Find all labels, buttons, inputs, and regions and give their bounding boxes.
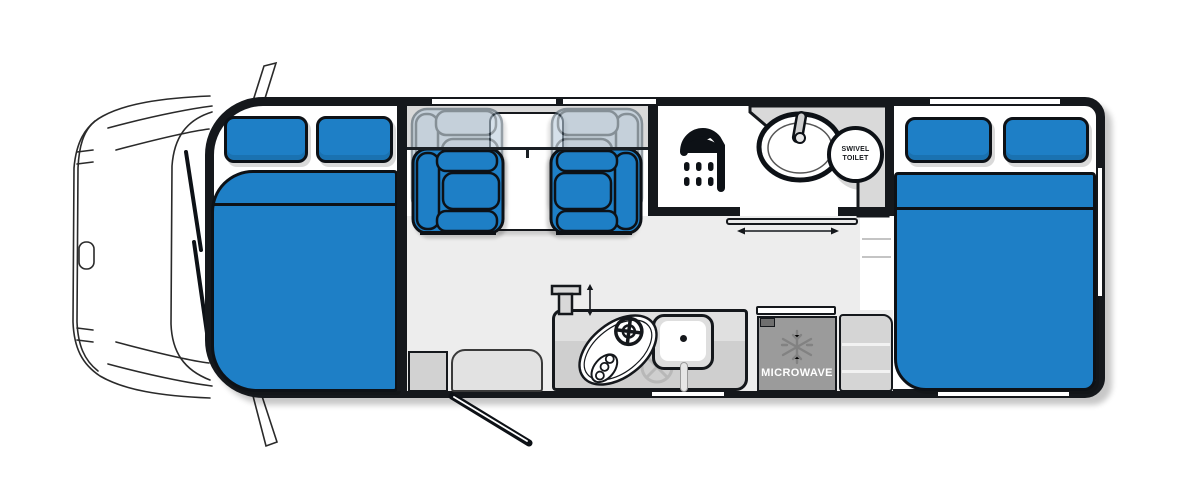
entry-step [451, 349, 543, 392]
microwave-label: MICROWAVE [761, 367, 833, 379]
bathroom-wall-bottom-left [658, 207, 740, 216]
entry-side-cabinet [408, 351, 448, 392]
microwave-shelf [756, 306, 836, 315]
microwave-fridge-unit: MICROWAVE [757, 316, 837, 392]
window-bottom-kitchen [652, 392, 724, 397]
toilet-label-line1: SWIVEL [841, 146, 869, 154]
bathroom-sliding-door [726, 218, 858, 225]
dinette-rail-line [407, 147, 650, 150]
bathroom-wall-bottom-right [838, 207, 888, 216]
cabinet-shelf-line [842, 343, 890, 346]
partition-wall-front [397, 104, 407, 391]
toilet-label-line2: TOILET [843, 155, 869, 163]
slide-arrow-icon [737, 226, 839, 236]
swivel-toilet: SWIVEL TOILET [827, 126, 884, 183]
dinette-seat-left [411, 147, 505, 235]
rear-bed-pillow-left [905, 117, 992, 163]
cabinet-shelf-line [842, 370, 890, 373]
dinette-rail-tick [526, 149, 529, 158]
rear-bed-mattress [894, 172, 1096, 391]
window-bottom-rear [938, 392, 1069, 397]
kitchen-cabinet [839, 314, 893, 392]
snowflake-icon [778, 329, 816, 365]
motorhome-floorplan: SWIVEL TOILET [0, 0, 1200, 480]
window-top-dinette-mullion [556, 99, 563, 104]
window-top-dinette [432, 99, 656, 104]
partition-wall-bathroom-right [885, 104, 894, 216]
window-top-rear [930, 99, 1060, 104]
kitchen-sink-stem [680, 362, 688, 392]
cooktop [566, 308, 670, 392]
seat-plinth-right [556, 231, 632, 235]
rear-bed-access [860, 216, 893, 310]
front-bed-pillow-right [316, 116, 393, 163]
door-swing-icon [445, 390, 540, 452]
shower-icon [675, 126, 741, 198]
kitchen-sink-drain [680, 335, 687, 342]
rear-bed-access-line [862, 256, 891, 258]
partition-wall-bathroom-left [648, 104, 658, 216]
front-bed-fold-line [213, 203, 396, 206]
rear-bed-fold-line [896, 207, 1094, 210]
rear-bed-pillow-right [1003, 117, 1089, 163]
fridge-tab [760, 318, 775, 327]
dinette-seat-right [549, 147, 643, 235]
front-bed-pillow-left [224, 116, 308, 163]
seat-plinth-left [420, 231, 496, 235]
window-rear-wall [1098, 168, 1103, 296]
rear-bed-access-line [862, 238, 891, 240]
